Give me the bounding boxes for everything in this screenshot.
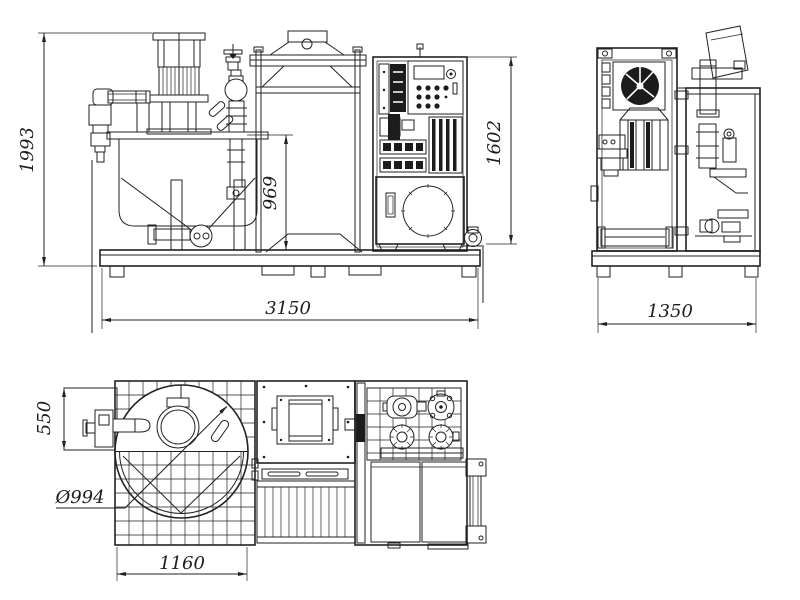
dim-cabinet-height: 1602 xyxy=(467,57,517,244)
dim-label-994: Ø994 xyxy=(54,487,104,508)
pump-bottom-left xyxy=(390,424,414,450)
button-grid[interactable] xyxy=(416,85,448,108)
dim-label-1993: 1993 xyxy=(17,127,38,173)
transfer-pump xyxy=(465,230,482,247)
dim-overall-height: 1993 xyxy=(17,33,152,266)
plan-side-rail xyxy=(466,459,486,543)
plan-middle-section xyxy=(252,381,355,543)
dim-label-550: 550 xyxy=(34,401,55,435)
dim-side-width: 1350 xyxy=(598,278,756,333)
dim-tank-height: 969 xyxy=(247,135,293,250)
side-base-skid xyxy=(592,251,760,277)
base-skid xyxy=(100,250,480,277)
cooling-fan xyxy=(621,67,659,105)
technical-drawing-sheet: 1993 969 1602 3150 xyxy=(0,0,800,600)
dim-label-969: 969 xyxy=(260,176,281,210)
side-view: 1350 xyxy=(591,26,760,333)
dim-overall-length: 3150 xyxy=(102,268,478,329)
control-cabinet xyxy=(373,44,484,303)
display-screen xyxy=(414,66,444,79)
plan-pump-bay xyxy=(345,381,468,549)
pump-top-left xyxy=(383,396,417,418)
dim-skid-length: 1160 xyxy=(117,547,247,581)
dim-label-1350: 1350 xyxy=(647,301,693,322)
control-panel xyxy=(408,61,463,114)
dim-label-3150: 3150 xyxy=(265,298,311,319)
side-cabinet xyxy=(591,48,677,251)
hydraulic-tank xyxy=(376,177,464,244)
manhole xyxy=(157,406,199,448)
center-hopper xyxy=(250,31,366,252)
front-view: 1993 969 1602 3150 xyxy=(17,31,517,333)
pump-bottom-right xyxy=(429,424,459,450)
side-tank-section xyxy=(675,26,760,251)
plan-view: 550 xyxy=(34,381,486,581)
deck-slats xyxy=(257,481,355,543)
bay-door-left[interactable] xyxy=(371,462,420,542)
dosing-valve-column xyxy=(208,44,247,199)
radiator xyxy=(620,120,668,170)
side-motor xyxy=(597,135,627,176)
plan-tank-section xyxy=(83,381,255,545)
agitator-motor xyxy=(147,33,211,134)
bay-door-right[interactable] xyxy=(422,462,467,542)
three-view-drawing: 1993 969 1602 3150 xyxy=(0,0,800,600)
dim-label-1160: 1160 xyxy=(159,553,205,574)
dim-label-1602: 1602 xyxy=(484,120,505,166)
bottom-roller xyxy=(598,227,673,248)
